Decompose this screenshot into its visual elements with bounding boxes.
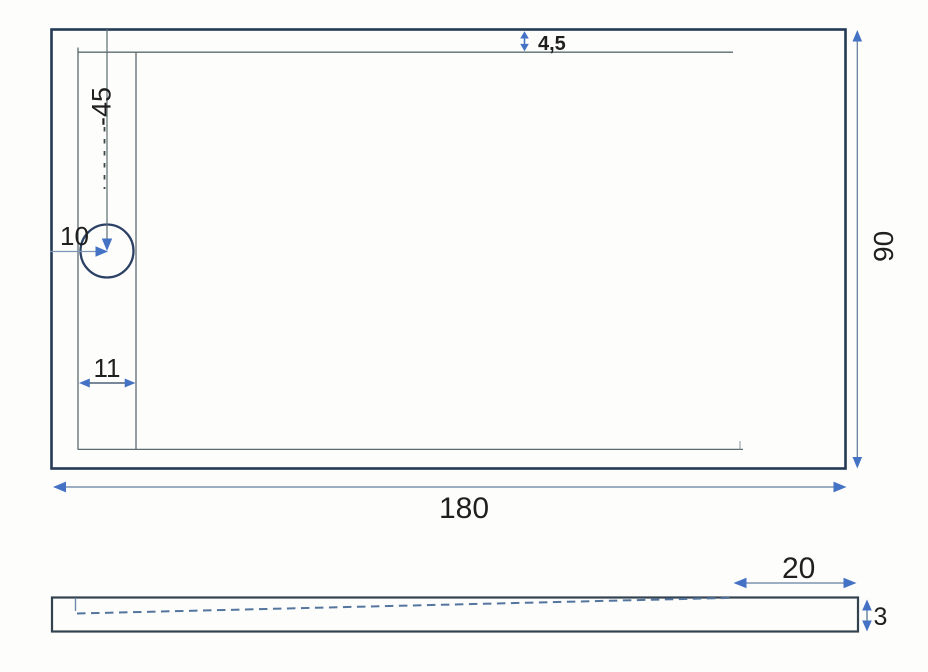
- svg-text:11: 11: [94, 353, 121, 383]
- svg-text:4,5: 4,5: [538, 33, 566, 55]
- svg-text:180: 180: [439, 492, 489, 525]
- svg-text:3: 3: [874, 603, 888, 631]
- svg-text:-45: -45: [87, 87, 117, 126]
- svg-text:20: 20: [782, 552, 815, 585]
- svg-text:90: 90: [868, 231, 899, 262]
- svg-text:10: 10: [60, 221, 89, 251]
